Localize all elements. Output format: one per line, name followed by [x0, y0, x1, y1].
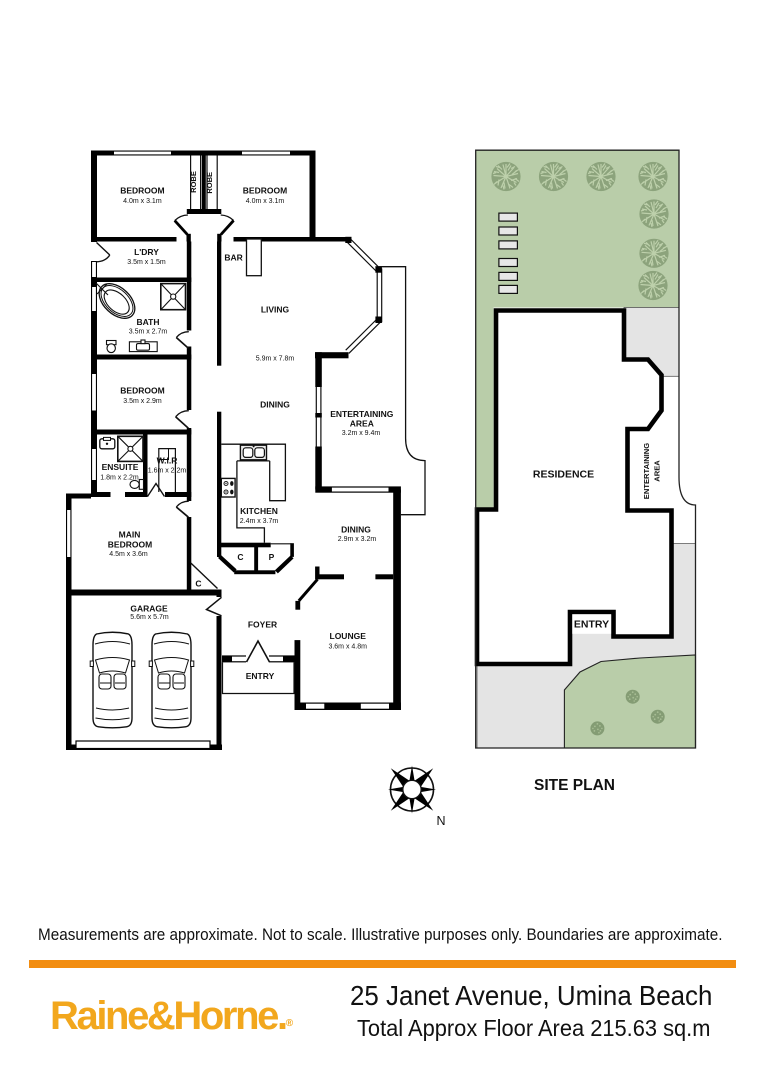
svg-text:5.6m x 5.7m: 5.6m x 5.7m — [130, 614, 169, 621]
svg-text:BEDROOM: BEDROOM — [120, 185, 164, 195]
svg-text:2.9m x 3.2m: 2.9m x 3.2m — [338, 536, 377, 543]
svg-text:3.6m x 4.8m: 3.6m x 4.8m — [328, 644, 367, 651]
svg-text:3.2m x 9.4m: 3.2m x 9.4m — [342, 430, 381, 437]
svg-text:ENTRY: ENTRY — [574, 619, 609, 631]
svg-text:W.I.R: W.I.R — [157, 455, 178, 465]
svg-text:L'DRY: L'DRY — [134, 247, 159, 257]
svg-text:LOUNGE: LOUNGE — [330, 631, 367, 641]
svg-text:3.5m x 2.9m: 3.5m x 2.9m — [123, 398, 162, 405]
svg-text:2.4m x 3.7m: 2.4m x 3.7m — [240, 518, 279, 525]
svg-text:BATH: BATH — [137, 317, 160, 327]
svg-text:BEDROOM: BEDROOM — [108, 539, 152, 549]
svg-text:BEDROOM: BEDROOM — [120, 385, 164, 395]
svg-text:MAIN: MAIN — [119, 529, 141, 539]
svg-text:RESIDENCE: RESIDENCE — [533, 468, 594, 480]
svg-text:GARAGE: GARAGE — [130, 603, 168, 613]
svg-text:DINING: DINING — [341, 524, 371, 534]
svg-text:AREA: AREA — [350, 418, 374, 428]
svg-text:4.5m x 3.6m: 4.5m x 3.6m — [109, 551, 148, 558]
svg-text:ROBE: ROBE — [205, 172, 214, 194]
svg-text:ENSUITE: ENSUITE — [102, 462, 139, 472]
svg-text:C: C — [237, 552, 243, 562]
svg-text:SITE PLAN: SITE PLAN — [534, 777, 615, 794]
svg-text:4.0m x 3.1m: 4.0m x 3.1m — [123, 198, 162, 205]
svg-text:1.6m x 2.2m: 1.6m x 2.2m — [148, 467, 187, 474]
svg-text:4.0m x 3.1m: 4.0m x 3.1m — [246, 198, 285, 205]
svg-text:FOYER: FOYER — [248, 619, 277, 629]
svg-text:ROBE: ROBE — [189, 171, 198, 193]
svg-text:C: C — [195, 578, 201, 588]
svg-text:DINING: DINING — [260, 399, 290, 409]
svg-text:BAR: BAR — [224, 253, 242, 263]
svg-text:5.9m x 7.8m: 5.9m x 7.8m — [256, 356, 295, 363]
svg-text:AREA: AREA — [653, 460, 662, 482]
svg-text:3.5m x 2.7m: 3.5m x 2.7m — [129, 328, 168, 335]
svg-text:1.8m x 2.2m: 1.8m x 2.2m — [100, 474, 139, 481]
svg-text:ENTRY: ENTRY — [246, 671, 275, 681]
svg-text:LIVING: LIVING — [261, 304, 290, 314]
svg-text:3.5m x 1.5m: 3.5m x 1.5m — [127, 259, 166, 266]
svg-text:ENTERTAINING: ENTERTAINING — [330, 409, 394, 419]
svg-text:P: P — [269, 552, 275, 562]
svg-text:KITCHEN: KITCHEN — [240, 506, 278, 516]
svg-text:N: N — [437, 814, 446, 828]
svg-text:ENTERTAINING: ENTERTAINING — [642, 443, 651, 499]
svg-text:BEDROOM: BEDROOM — [243, 185, 287, 195]
